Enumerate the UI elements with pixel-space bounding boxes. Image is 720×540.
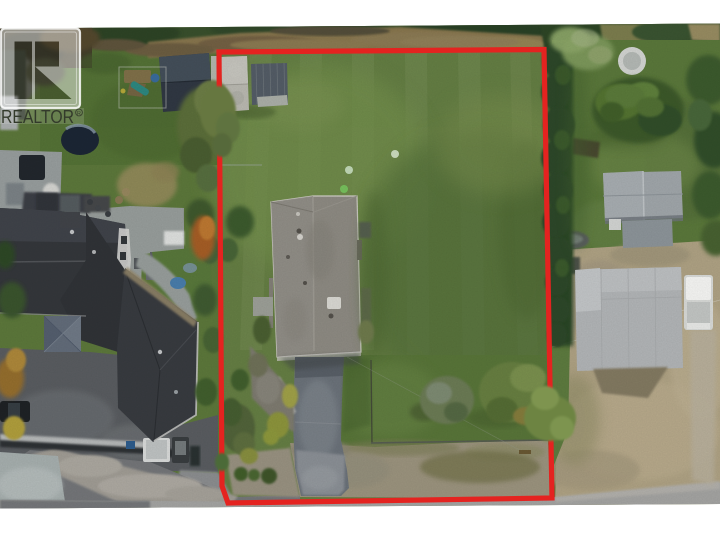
svg-text:R: R (77, 111, 81, 117)
svg-text:REALTOR: REALTOR (1, 106, 74, 127)
